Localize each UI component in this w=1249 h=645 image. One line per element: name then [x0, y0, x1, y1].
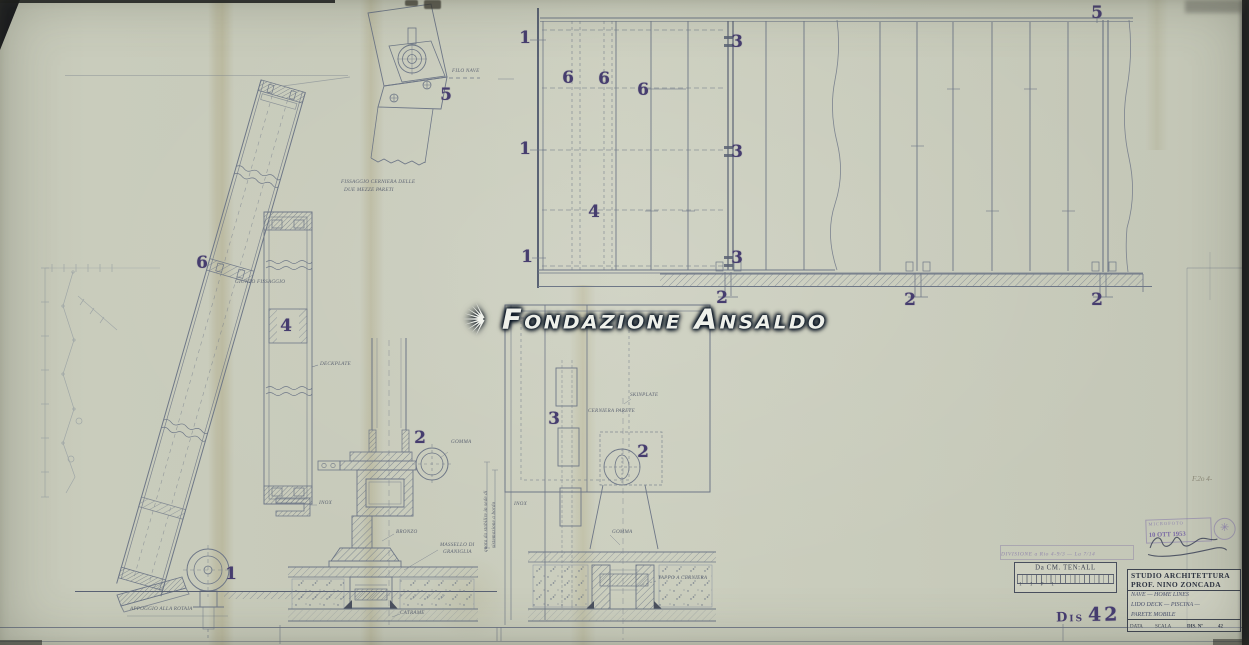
annotation-deckplate: DECKPLATE — [320, 361, 351, 367]
title-block-footer: DATA SCALA DIS. Nº 42 — [1128, 619, 1240, 631]
callout-number: 6 — [562, 68, 574, 88]
field-scala-label: SCALA — [1155, 623, 1171, 629]
annotation-bronzo: BRONZO — [396, 529, 417, 535]
drawing-number-prefix: Dis — [1056, 610, 1084, 625]
plan-detail-3-2 — [484, 305, 716, 640]
microfilm-stamp-title: MICROFOTO — [1148, 521, 1179, 527]
studio-name-line2: PROF. NINO ZONCADA — [1131, 581, 1237, 590]
annotation-graniglia: GRANIGLIA — [443, 549, 472, 555]
callout-number: 2 — [637, 442, 649, 462]
callout-number: 3 — [731, 32, 743, 52]
tape-mark — [405, 0, 418, 6]
callout-number: 1 — [225, 564, 237, 584]
scan-edge-right — [1242, 0, 1249, 645]
callout-number: 2 — [414, 428, 426, 448]
scan-edge-top — [0, 0, 335, 3]
panel-section-4 — [264, 212, 318, 504]
callout-number: 3 — [548, 409, 560, 429]
callout-number: 4 — [588, 202, 600, 222]
annotation-inox-left: INOX — [319, 500, 332, 506]
callout-number: 2 — [904, 290, 916, 310]
callout-number: 5 — [440, 85, 452, 105]
callout-number: 6 — [196, 253, 208, 273]
division-stamp-line: DIVISIONE a Rio 4-9/3 — La 7/14 — [1000, 545, 1134, 560]
callout-number: 5 — [1091, 3, 1103, 23]
annotation-inox-plan: INOX — [514, 501, 527, 507]
wall-elevation — [498, 8, 1152, 297]
diagonal-wall-section — [117, 80, 306, 596]
project-line-subject: PARETE MOBILE — [1131, 612, 1195, 618]
detail-2-base-section — [276, 338, 478, 625]
annotation-caption-line2: DUE MEZZE PARETI — [344, 187, 394, 193]
annotation-catrame: CATRAME — [400, 610, 425, 616]
annotation-tappo: TAPPO A CERNIERA — [658, 575, 707, 581]
scan-corner-bottom-right — [1213, 639, 1249, 645]
callout-number: 2 — [716, 288, 728, 308]
field-dis-value: 42 — [1218, 623, 1223, 629]
folding-schematic — [41, 264, 160, 497]
annotation-gomma-floor: GOMMA — [612, 529, 632, 535]
annotation-gomma: GOMMA — [451, 439, 471, 445]
scan-corner-bottom-left — [0, 640, 42, 645]
callout-number: 1 — [519, 139, 531, 159]
microfilm-stamp: MICROFOTO 10 OTT 1953 ✳ — [1145, 516, 1242, 563]
scale-conversion-box: Da CM. TEN:ALL 1 1 P 1 — [1014, 562, 1117, 593]
callout-number: 6 — [637, 80, 649, 100]
drawing-number-value: 42 — [1088, 603, 1121, 626]
scan-smudge-top-right — [1185, 0, 1242, 13]
annotation-vertical-sistemazione: sistemazione a bordo — [491, 502, 497, 548]
callout-number: 6 — [598, 69, 610, 89]
field-data-label: DATA — [1130, 623, 1143, 629]
callout-number: 2 — [1091, 290, 1103, 310]
annotation-massello: MASSELLO DI — [440, 542, 474, 548]
callout-number: 3 — [731, 248, 743, 268]
annotation-pencil-note: F.2o 4- — [1192, 475, 1212, 483]
scale-ruler-marks: 1 1 P 1 — [1019, 581, 1057, 587]
callout-number: 1 — [521, 247, 533, 267]
title-block: STUDIO ARCHITETTURA PROF. NINO ZONCADA N… — [1127, 569, 1241, 632]
division-stamp-text: DIVISIONE a Rio 4-9/3 — La 7/14 — [1001, 551, 1095, 557]
callout-number: 3 — [731, 142, 743, 162]
annotation-caption-line1: FISSAGGIO CERNIERA DELLE — [341, 179, 415, 185]
drawing-number-stamp: Dis 42 — [1056, 603, 1121, 626]
annotation-filo-nave: FILO NAVE — [452, 68, 479, 74]
annotation-rail-caption: APPOGGIO ALLA ROTAIA — [130, 606, 193, 612]
tape-mark — [424, 0, 441, 9]
project-line-deck: LIDO DECK — PISCINA — — [1131, 602, 1195, 608]
signature-icon — [1144, 529, 1231, 562]
annotation-skinplate: SKINPLATE — [630, 392, 658, 398]
callout-number: 1 — [519, 28, 531, 48]
field-dis-label: DIS. Nº — [1187, 623, 1203, 629]
annotation-vertical-quota: quota da stabilire in sede di — [483, 490, 489, 552]
project-line-ship: NAVE — HOME LINES — [1131, 592, 1195, 598]
annotation-cerniera-parete: CERNIERA PARETE — [588, 408, 635, 414]
callout-number: 4 — [280, 316, 292, 336]
blueprint-sheet: 5 6 1 4 2 3 2 1 1 1 6 6 6 4 3 3 3 2 2 2 … — [0, 0, 1249, 645]
scale-box-title: Da CM. TEN:ALL — [1034, 564, 1097, 571]
annotation-giunto: GIUNTO FISSAGGIO — [235, 279, 285, 285]
